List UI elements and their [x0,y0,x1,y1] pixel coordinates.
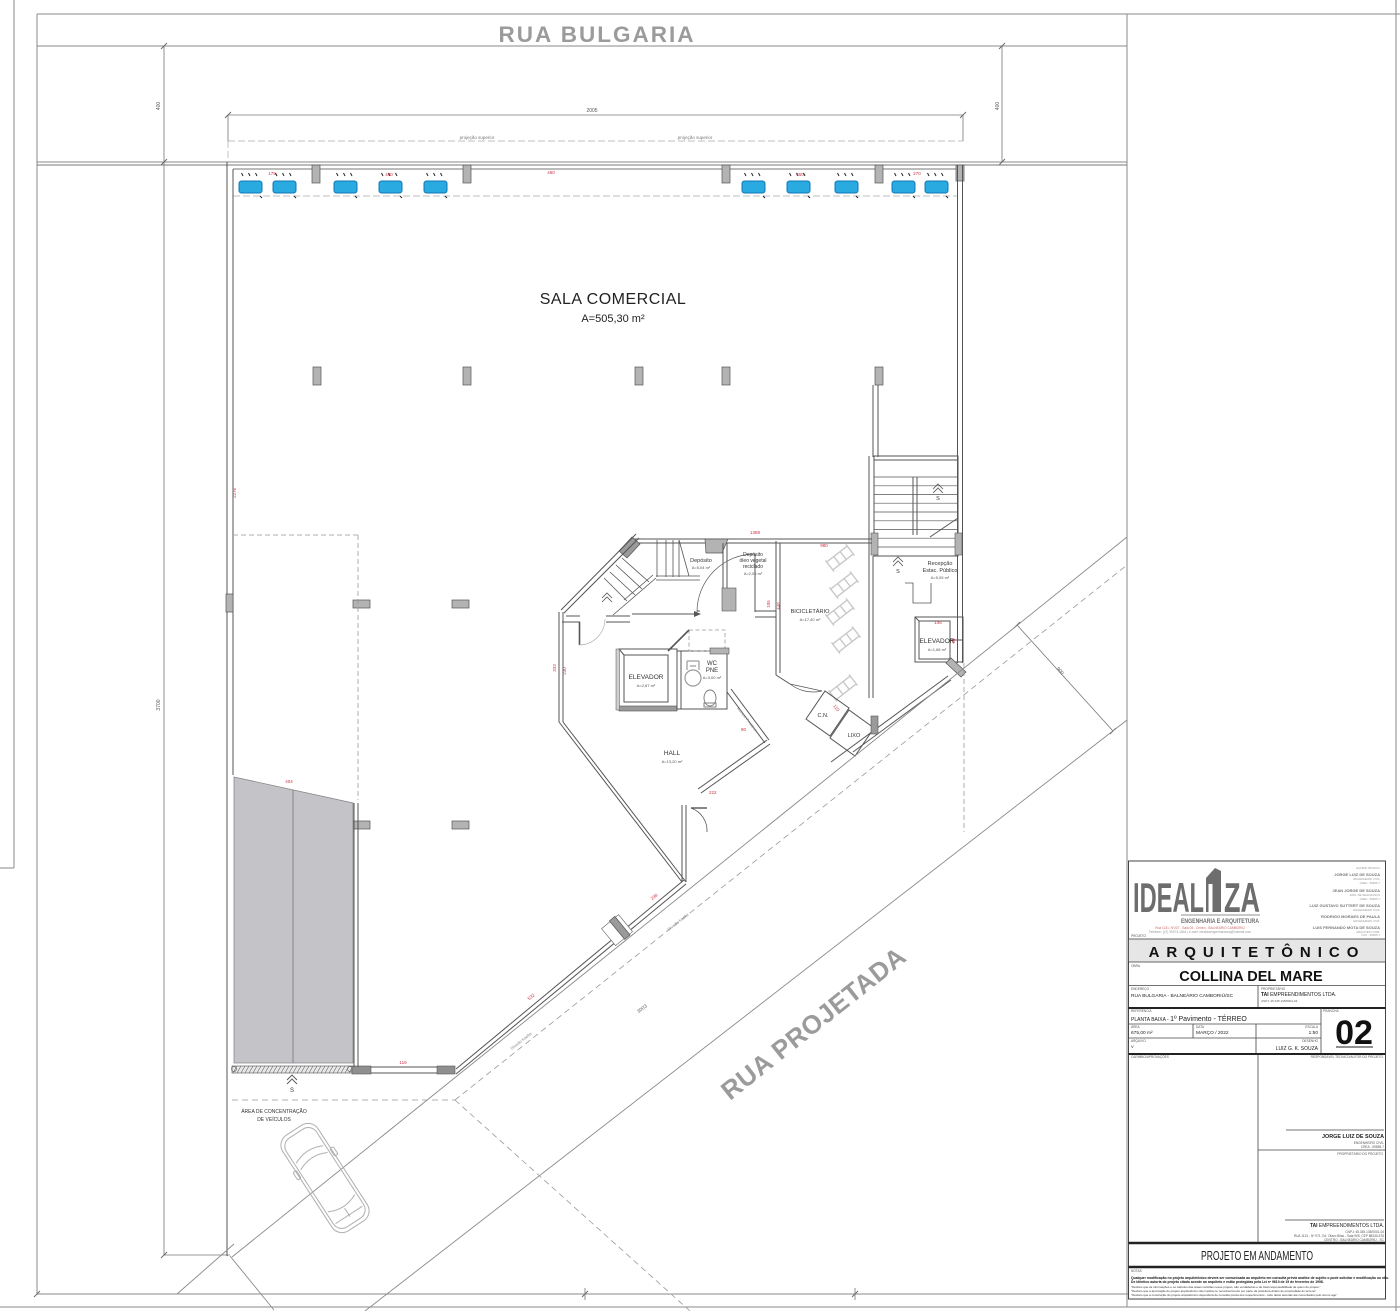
svg-text:RUA BULGARIA: RUA BULGARIA [499,22,696,47]
svg-text:IDEAL: IDEAL [1133,874,1204,921]
svg-text:CNPJ: 45.345.135/0001-04: CNPJ: 45.345.135/0001-04 [1261,999,1298,1003]
svg-text:projeção superior: projeção superior [460,135,495,140]
svg-text:S: S [936,496,940,502]
svg-text:OBRA: OBRA [1131,964,1141,968]
svg-text:CREA - 59655-7: CREA - 59655-7 [1360,897,1381,901]
svg-text:ESCALA: ESCALA [1305,1025,1318,1029]
svg-text:146: 146 [934,620,942,625]
svg-text:DESENHO: DESENHO [1302,1039,1318,1043]
svg-text:A=5,04 m²: A=5,04 m² [692,565,711,570]
svg-text:ÁREA: ÁREA [1131,1025,1141,1029]
svg-text:WC: WC [707,661,718,667]
svg-text:A=2,87 m²: A=2,87 m² [637,683,656,688]
svg-text:PROPRIETÁRIO DO PROJETO: PROPRIETÁRIO DO PROJETO [1337,1152,1383,1156]
svg-text:270: 270 [913,171,921,176]
svg-text:PNE: PNE [706,668,718,674]
svg-text:446: 446 [776,602,781,610]
svg-text:Recepção: Recepção [928,561,953,567]
svg-text:404: 404 [285,779,293,784]
svg-text:Estac. Público: Estac. Público [923,568,958,574]
svg-text:A=2,06 m²: A=2,06 m² [744,571,763,576]
svg-text:A=3,00 m²: A=3,00 m² [703,675,722,680]
svg-text:222: 222 [709,790,717,795]
svg-text:675,00 m²: 675,00 m² [1131,1030,1153,1036]
svg-text:COLLINA DEL MARE: COLLINA DEL MARE [1179,969,1323,985]
svg-text:REFERÊNCIA: REFERÊNCIA [1131,1008,1152,1013]
svg-text:460: 460 [385,172,393,177]
svg-text:ELEVADOR: ELEVADOR [920,638,955,645]
svg-text:60: 60 [951,638,956,644]
svg-text:MARÇO / 2022: MARÇO / 2022 [1196,1030,1229,1036]
svg-text:JORGE LUIZ DE SOUZA: JORGE LUIZ DE SOUZA [1322,1134,1384,1140]
svg-text:ÁREA DE CONCENTRAÇÃO: ÁREA DE CONCENTRAÇÃO [241,1108,307,1115]
svg-text:Depósito: Depósito [690,558,712,564]
svg-text:02: 02 [1335,1014,1373,1052]
svg-text:400: 400 [995,102,1001,111]
svg-text:ELEVADOR: ELEVADOR [629,674,664,681]
svg-text:ARQUITETÔNICO: ARQUITETÔNICO [1149,943,1366,961]
svg-text:333: 333 [552,664,557,672]
svg-text:CAU - 59655-7: CAU - 59655-7 [1361,933,1380,937]
svg-text:80: 80 [741,727,747,732]
svg-text:ARQUIVO: ARQUIVO [1131,1039,1146,1043]
svg-text:CREA - 59655-7: CREA - 59655-7 [1360,881,1381,885]
svg-text:Telefone: (47) 99973-1844 | e-: Telefone: (47) 99973-1844 | e-mail: idea… [1149,930,1252,934]
svg-text:S: S [896,569,900,575]
svg-text:Acesso Privativo: Acesso Privativo [736,706,759,733]
svg-text:LUIZ G. K. SOUZA: LUIZ G. K. SOUZA [1276,1046,1319,1052]
svg-text:3700: 3700 [156,699,162,710]
svg-text:RESPONSÁVEL TÉCNICO/AUTOR DO P: RESPONSÁVEL TÉCNICO/AUTOR DO PROJETO [1311,1054,1384,1059]
svg-text:DATA: DATA [1196,1025,1205,1029]
svg-text:LIXO: LIXO [848,733,861,739]
svg-text:230: 230 [562,667,567,675]
svg-text:Divisão Kaefer: Divisão Kaefer [666,911,690,931]
svg-text:ENGENHEIRO CIVIL: ENGENHEIRO CIVIL [1353,919,1380,923]
svg-text:980: 980 [820,543,828,548]
svg-text:3003: 3003 [636,1003,649,1015]
svg-text:TAI EMPREENDIMENTOS LTDA.: TAI EMPREENDIMENTOS LTDA. [1261,992,1336,998]
svg-text:CREA - 59655-7: CREA - 59655-7 [1361,1145,1384,1149]
svg-text:1388: 1388 [750,530,761,535]
svg-text:298: 298 [650,892,659,901]
svg-text:105: 105 [766,600,771,608]
svg-text:532: 532 [527,992,536,1001]
svg-text:400: 400 [156,102,162,111]
svg-text:TAI EMPREENDIMENTOS LTDA.: TAI EMPREENDIMENTOS LTDA. [1310,1223,1384,1229]
svg-text:SALA COMERCIAL: SALA COMERCIAL [540,291,687,308]
svg-text:PRANCHA: PRANCHA [1323,1009,1339,1013]
svg-text:CARIMBO/APROVAÇÕES: CARIMBO/APROVAÇÕES [1131,1054,1169,1059]
svg-text:RUA PROJETADA: RUA PROJETADA [715,941,912,1106]
svg-text:HALL: HALL [664,750,681,757]
svg-text:"Declaro que a construção do p: "Declaro que a construção do projeto arq… [1131,1293,1337,1297]
svg-text:2005: 2005 [586,108,597,114]
svg-text:A=505,30 m²: A=505,30 m² [581,313,645,325]
svg-text:reciclado: reciclado [743,564,763,570]
svg-text:ENGENHEIRO CIVIL: ENGENHEIRO CIVIL [1353,908,1380,912]
svg-text:ENGENHARIA E ARQUITETURA: ENGENHARIA E ARQUITETURA [1181,918,1259,925]
svg-text:A=1,68 m²: A=1,68 m² [928,647,947,652]
svg-text:2276: 2276 [232,487,237,498]
svg-text:projeção superior: projeção superior [678,135,713,140]
svg-text:V: V [1131,1044,1134,1049]
svg-text:EQUIPE TÉCNICA: EQUIPE TÉCNICA [1356,865,1380,870]
svg-text:ZA: ZA [1224,874,1260,921]
svg-text:460: 460 [547,170,555,175]
svg-text:DE VEÍCULOS: DE VEÍCULOS [257,1116,291,1123]
svg-text:ENDEREÇO: ENDEREÇO [1131,987,1150,991]
svg-text:900: 900 [1055,666,1065,676]
svg-text:1:50: 1:50 [1309,1030,1319,1036]
svg-text:175: 175 [268,171,276,176]
svg-text:110: 110 [832,704,841,713]
svg-text:PROJETO: PROJETO [1131,934,1147,938]
svg-text:119: 119 [399,1060,407,1065]
svg-text:S: S [290,1088,294,1094]
svg-text:NOTAS: NOTAS [1131,1269,1142,1273]
svg-text:PROJETO EM ANDAMENTO: PROJETO EM ANDAMENTO [1201,1249,1313,1263]
svg-text:C.N.: C.N. [818,713,829,719]
svg-text:A=17,40 m²: A=17,40 m² [800,617,821,622]
svg-text:RUA BULGARIA - BALNEÁRIO CAMBO: RUA BULGARIA - BALNEÁRIO CAMBORIÚ/SC [1131,992,1234,999]
svg-text:460: 460 [796,172,804,177]
svg-text:A=13,20 m²: A=13,20 m² [662,759,683,764]
svg-text:CENTRO - BALNEÁRIO CAMBORIÚ -: CENTRO - BALNEÁRIO CAMBORIÚ - SC [1324,1237,1385,1242]
svg-text:PROPRIETÁRIO: PROPRIETÁRIO [1261,987,1286,991]
svg-text:A=5,05 m²: A=5,05 m² [931,575,950,580]
svg-text:BICICLETÁRIO: BICICLETÁRIO [791,608,831,615]
svg-text:De idêntico autoria do projeto: De idêntico autoria do projeto citado ac… [1131,1280,1324,1284]
